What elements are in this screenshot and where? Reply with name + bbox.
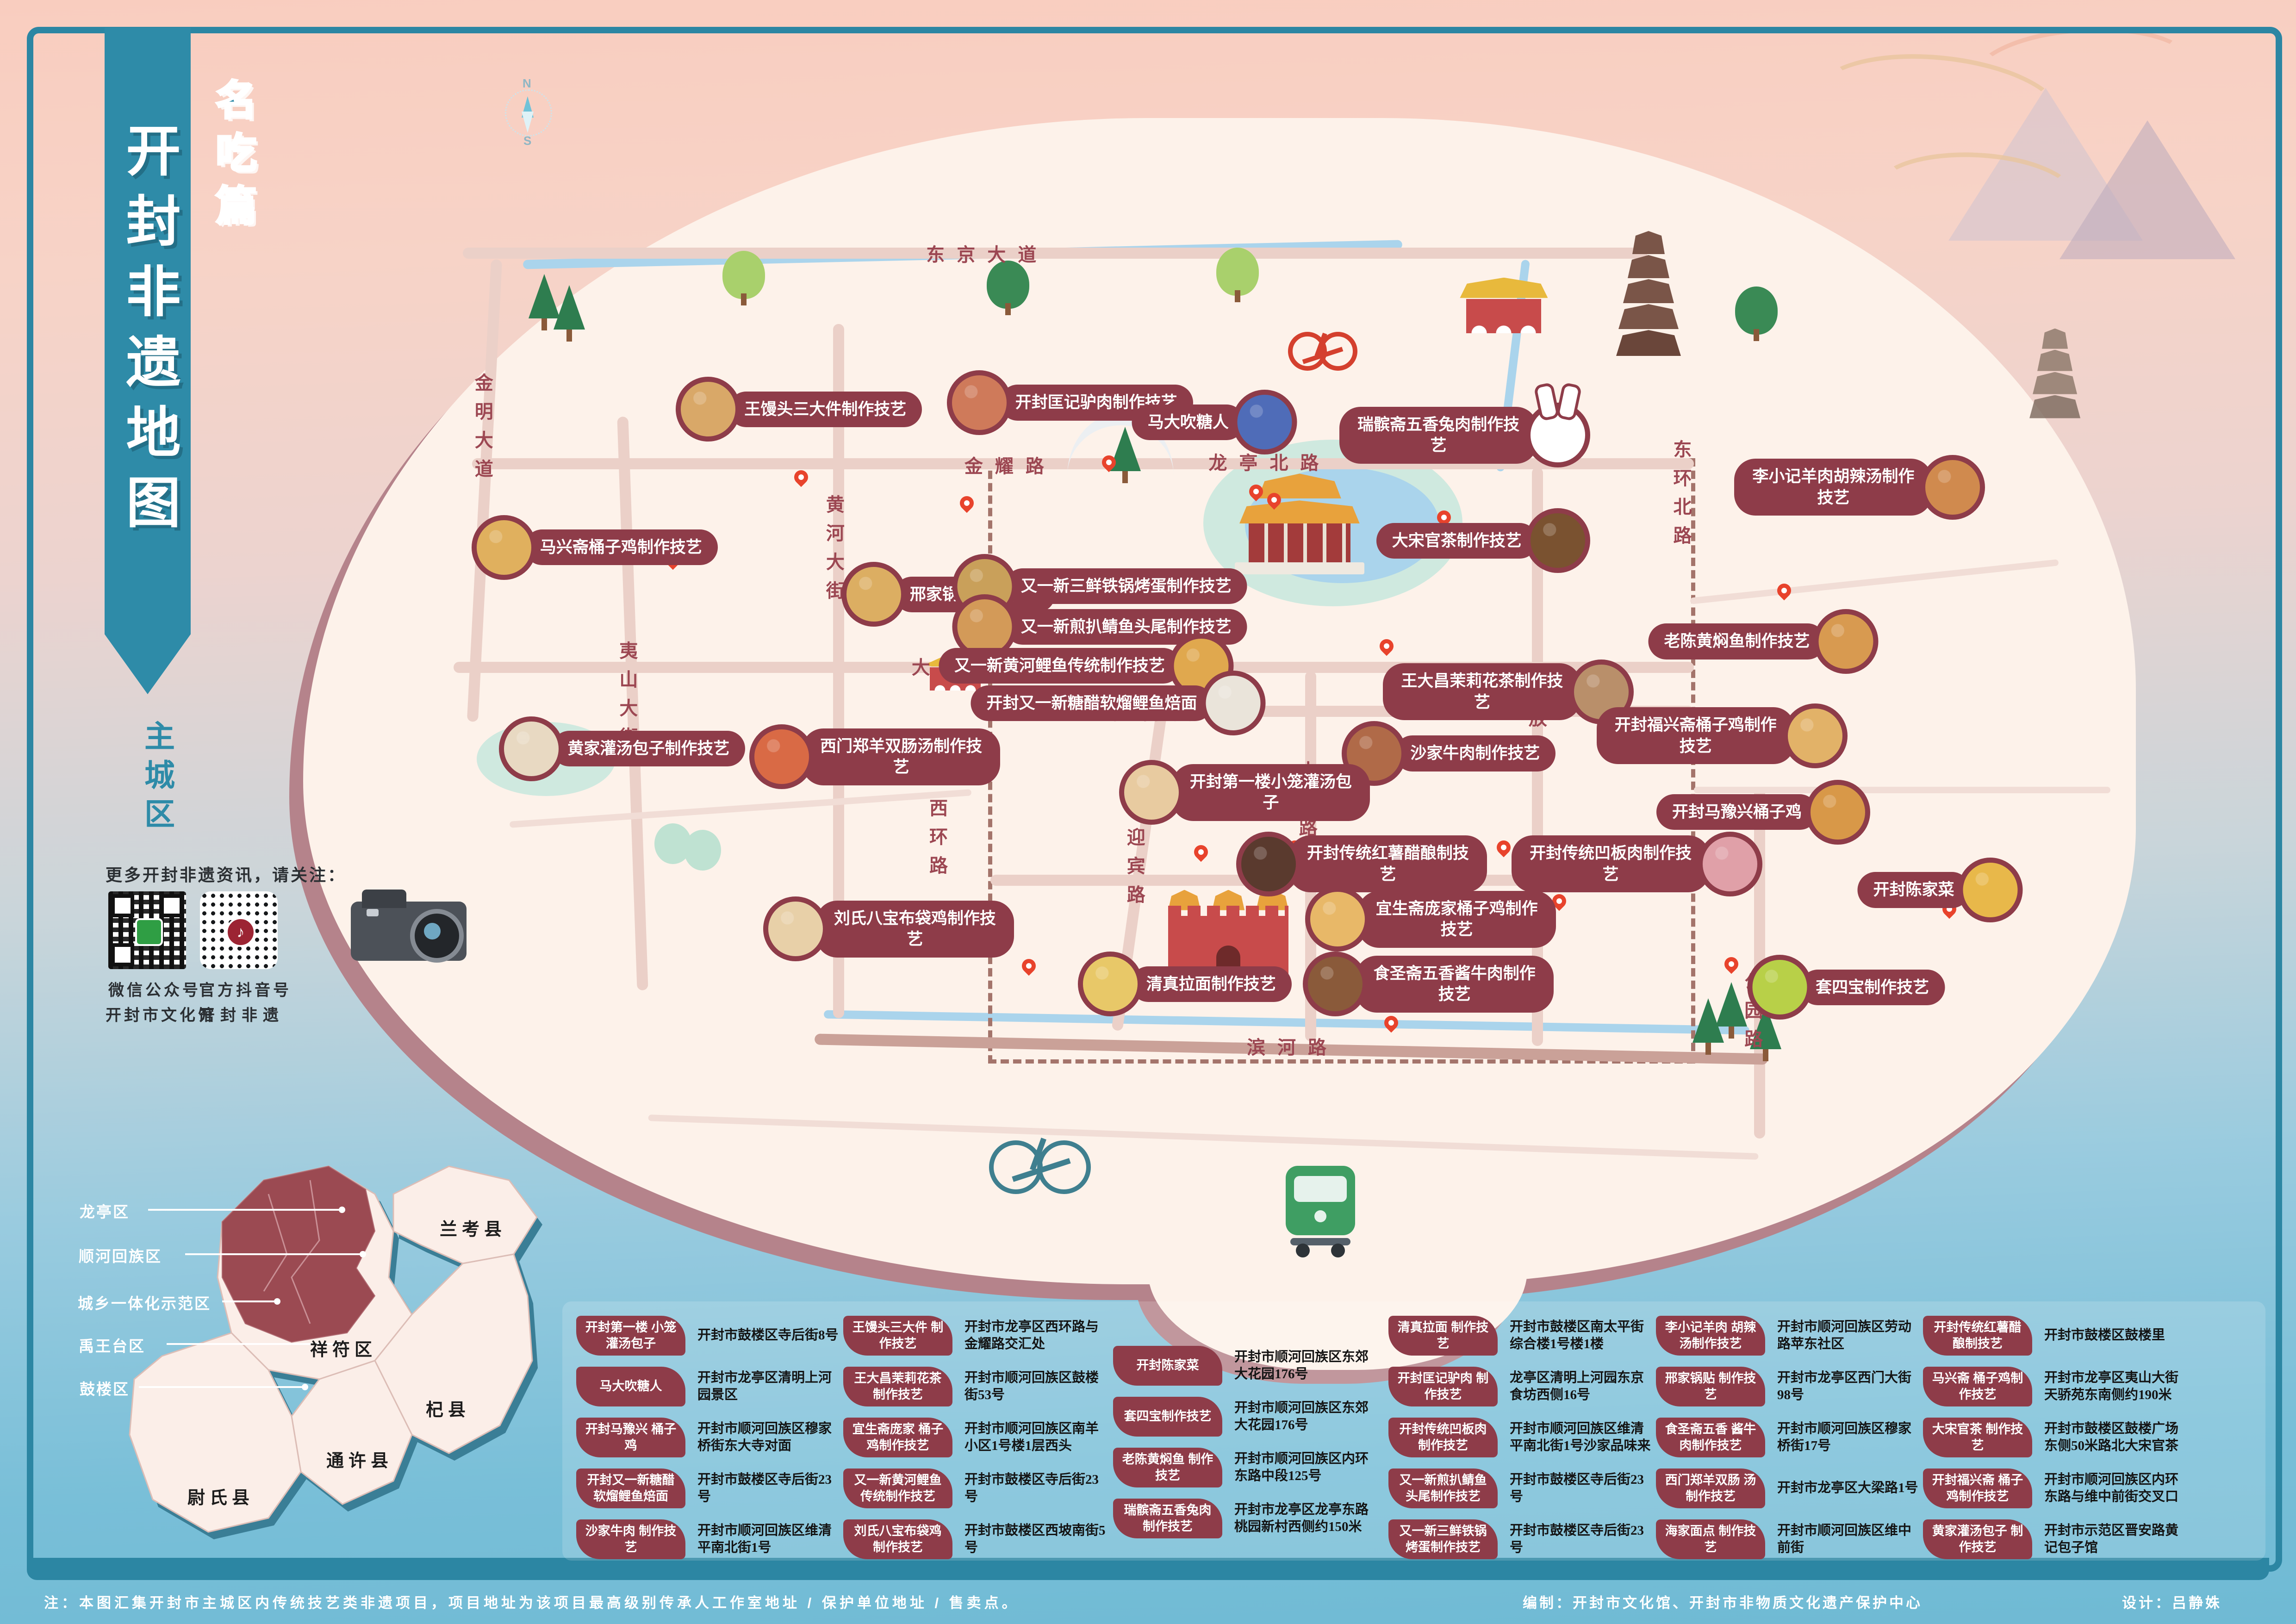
legend-item-name: 开封传统红薯醋 酿制技艺 [1923, 1316, 2032, 1356]
legend-item-address: 开封市顺河回族区维清平南北街1号沙家品味来 [1510, 1420, 1657, 1455]
legend-item-name: 李小记羊肉 胡辣汤制作技艺 [1656, 1316, 1765, 1356]
food-photo-circle [1078, 952, 1143, 1016]
map-poi[interactable]: 食圣斋五香酱牛肉制作技艺 [1303, 952, 1554, 1016]
inset-label-longting: 龙亭区 [80, 1200, 130, 1222]
footer-credit-left: 编制：开封市文化馆、开封市非物质文化遗产保护中心 [1523, 1591, 1923, 1612]
food-photo-circle [1305, 887, 1370, 952]
road-name: 金耀路 [964, 456, 1056, 477]
legend-item[interactable]: 又一新黄河鲤鱼 传统制作技艺 开封市鼓楼区寺后街23号 [843, 1467, 1112, 1510]
poi-label: 食圣斋五香酱牛肉制作技艺 [1356, 956, 1554, 1013]
legend-item-address: 开封市龙亭区龙亭东路桃园新村西侧约150米 [1234, 1501, 1381, 1536]
food-photo-circle [1783, 703, 1848, 768]
road-label: 滨河路 [1247, 1033, 1338, 1059]
legend-item[interactable]: 开封又一新糖醋 软熘鲤鱼焙面 开封市鼓楼区寺后街23号 [576, 1467, 845, 1510]
poi-label: 马大吹糖人 [1132, 404, 1244, 441]
poi-label: 李小记羊肉胡辣汤制作技艺 [1734, 459, 1932, 516]
legend-item[interactable]: 马大吹糖人 开封市龙亭区清明上河园景区 [576, 1365, 845, 1408]
legend-group-1: 开封第一楼 小笼灌汤包子 开封市鼓楼区寺后街8号 马大吹糖人 开封市龙亭区清明上… [576, 1314, 845, 1569]
legend-item-address: 开封市顺河回族区鼓楼街53号 [964, 1369, 1112, 1404]
leader-line [139, 1386, 305, 1388]
legend-item-address: 开封市鼓楼区鼓楼广场东侧50米路北大宋官茶 [2044, 1420, 2191, 1455]
legend-item-address: 开封市顺河回族区南羊小区1号楼1层西头 [964, 1420, 1112, 1455]
edition-label: 名吃篇 [204, 79, 262, 237]
legend-item-name: 邢家锅贴 制作技艺 [1656, 1367, 1765, 1406]
legend-item-address: 开封市顺河回族区劳动路苹东社区 [1777, 1319, 1924, 1353]
footer-note: 注：本图汇集开封市主城区内传统技艺类非遗项目，项目地址为该项目最高级别传承人工作… [44, 1591, 1020, 1612]
inset-label-yuwangtai: 禹王台区 [79, 1334, 145, 1356]
map-poi[interactable]: 沙家牛肉制作技艺 [1342, 721, 1556, 786]
district-inset-map: 龙亭区 顺河回族区 城乡一体化示范区 禹王台区 鼓楼区 兰考县 祥符区 杞县 通… [69, 1139, 560, 1555]
inset-label-tongxu: 通许县 [326, 1446, 393, 1472]
legend-group-6: 开封传统红薯醋 酿制技艺 开封市鼓楼区鼓楼里 马兴斋 桶子鸡制作技艺 开封市龙亭… [1923, 1314, 2191, 1569]
legend-item-address: 开封市鼓楼区寺后街23号 [1510, 1522, 1657, 1556]
food-photo-circle [1232, 390, 1297, 454]
legend-item-name: 开封又一新糖醋 软熘鲤鱼焙面 [576, 1468, 685, 1508]
iron-pagoda-icon [1616, 231, 1681, 370]
map-poi[interactable]: 王馒头三大件制作技艺 [676, 377, 922, 442]
follow-heading: 更多开封非遗资讯，请关注： [106, 862, 346, 886]
poi-label: 黄家灌汤包子制作技艺 [552, 731, 745, 767]
food-photo-circle [749, 724, 814, 789]
road-label: 东环北路 [1667, 440, 1694, 554]
legend-item[interactable]: 开封福兴斋 桶子鸡制作技艺 开封市顺河回族区内环东路与维中前街交叉口 [1923, 1467, 2191, 1510]
poi-label: 大宋官茶制作技艺 [1376, 523, 1537, 559]
legend-item-name: 瑞髌斋五香兔肉 制作技艺 [1113, 1499, 1222, 1538]
legend-item-name: 清真拉面 制作技艺 [1388, 1316, 1498, 1356]
compass-s: S [523, 134, 531, 148]
map-poi[interactable]: 黄家灌汤包子制作技艺 [499, 716, 745, 781]
map-poi[interactable]: 清真拉面制作技艺 [1078, 952, 1292, 1016]
legend-group-4: 清真拉面 制作技艺 开封市鼓楼区南太平街综合楼1号楼1楼 开封匡记驴肉 制作技艺… [1388, 1314, 1657, 1569]
legend-item-address: 开封市顺河回族区穆家桥街东大寺对面 [697, 1420, 845, 1455]
poi-label: 开封陈家菜 [1858, 872, 1970, 908]
legend-item[interactable]: 瑞髌斋五香兔肉 制作技艺 开封市龙亭区龙亭东路桃园新村西侧约150米 [1113, 1497, 1381, 1540]
legend-item[interactable]: 又一新煎扒鲭鱼 头尾制作技艺 开封市鼓楼区寺后街23号 [1388, 1467, 1657, 1510]
food-photo-circle [1201, 671, 1266, 735]
legend-item-name: 宜生斋庞家 桶子鸡制作技艺 [843, 1418, 952, 1457]
map-poi[interactable]: 刘氏八宝布袋鸡制作技艺 [763, 896, 1014, 961]
map-poi[interactable]: 开封陈家菜 [1858, 858, 2023, 922]
food-photo-circle [1920, 455, 1985, 520]
map-poi[interactable]: 瑞髌斋五香兔肉制作技艺 [1339, 403, 1590, 467]
legend-item[interactable]: 王大昌茉莉花茶 制作技艺 开封市顺河回族区鼓楼街53号 [843, 1365, 1112, 1408]
legend-item-address: 开封市示范区晋安路黄记包子馆 [2044, 1522, 2191, 1556]
inset-label-gulou: 鼓楼区 [80, 1377, 130, 1399]
legend-item-name: 又一新黄河鲤鱼 传统制作技艺 [843, 1468, 952, 1508]
legend-item[interactable]: 刘氏八宝布袋鸡 制作技艺 开封市鼓楼区西坡南街5号 [843, 1518, 1112, 1561]
leader-line [185, 1253, 363, 1255]
legend-item[interactable]: 开封马豫兴 桶子鸡 开封市顺河回族区穆家桥街东大寺对面 [576, 1416, 845, 1459]
tree-icon [684, 830, 721, 871]
food-photo-circle [947, 370, 1012, 435]
inset-label-qixian: 杞县 [426, 1395, 470, 1421]
tree-icon [1692, 983, 1724, 1043]
legend-item-name: 王大昌茉莉花茶 制作技艺 [843, 1367, 952, 1406]
legend-item[interactable]: 黄家灌汤包子 制作技艺 开封市示范区晋安路黄记包子馆 [1923, 1518, 2191, 1561]
legend-item-address: 开封市鼓楼区鼓楼里 [2044, 1327, 2191, 1344]
legend-item[interactable]: 清真拉面 制作技艺 开封市鼓楼区南太平街综合楼1号楼1楼 [1388, 1314, 1657, 1357]
legend-item-address: 开封市顺河回族区内环东路中段125号 [1234, 1450, 1381, 1485]
legend-item[interactable]: 王馒头三大件 制作技艺 开封市龙亭区西环路与金耀路交汇处 [843, 1314, 1112, 1357]
poi-label: 开封福兴斋桶子鸡制作技艺 [1597, 707, 1795, 764]
food-photo-circle [1303, 952, 1368, 1016]
pagoda-icon [2029, 329, 2080, 435]
legend-item-address: 开封市龙亭区夷山大街天骄苑东南侧约190米 [2044, 1369, 2191, 1404]
poi-label: 王馒头三大件制作技艺 [728, 392, 922, 428]
food-photo-circle [1747, 955, 1812, 1020]
map-poi[interactable]: 李小记羊肉胡辣汤制作技艺 [1734, 455, 1985, 520]
qr1-type: 微信公众号 [108, 977, 201, 1000]
legend-item[interactable]: 开封匡记驴肉 制作技艺 龙亭区清明上河园东京食坊西侧16号 [1388, 1365, 1657, 1408]
tree-icon [722, 251, 765, 299]
legend-item-address: 开封市顺河回族区维中前街 [1777, 1522, 1924, 1556]
map-poi[interactable]: 西门郑羊双肠汤制作技艺 [749, 724, 1000, 789]
poi-label: 开封又一新糖醋软熘鲤鱼焙面 [971, 685, 1213, 722]
page-title: 开封非遗地图 [109, 56, 188, 611]
bicycle-icon [1288, 324, 1357, 371]
road-label: 西环路 [923, 798, 950, 884]
map-poi[interactable]: 开封第一楼小笼灌汤包子 [1119, 760, 1370, 825]
road-name: 东环北路 [1670, 440, 1691, 554]
legend-item-address: 开封市鼓楼区寺后街8号 [697, 1327, 845, 1344]
food-photo-circle [1814, 609, 1879, 674]
legend-item-name: 黄家灌汤包子 制作技艺 [1923, 1519, 2032, 1559]
legend-item-name: 大宋官茶 制作技艺 [1923, 1418, 2032, 1457]
legend-item[interactable]: 开封第一楼 小笼灌汤包子 开封市鼓楼区寺后街8号 [576, 1314, 845, 1357]
legend-item[interactable]: 食圣斋五香 酱牛肉制作技艺 开封市顺河回族区穆家桥街17号 [1656, 1416, 1924, 1459]
poi-label: 清真拉面制作技艺 [1131, 966, 1292, 1002]
food-photo-circle [499, 716, 564, 781]
road-label: 金耀路 [964, 451, 1056, 478]
legend-item-address: 开封市顺河回族区维清平南北街1号 [697, 1522, 845, 1556]
inset-label-weishi: 尉氏县 [187, 1483, 254, 1509]
road-label: 东京大道 [926, 240, 1048, 267]
inset-label-xiangfu: 祥符区 [310, 1335, 377, 1361]
legend-item-address: 开封市鼓楼区寺后街23号 [697, 1471, 845, 1506]
road-name: 金明大道 [472, 373, 492, 488]
footer-credit-right: 设计：吕静姝 [2122, 1591, 2222, 1612]
poi-label: 老陈黄焖鱼制作技艺 [1649, 623, 1826, 660]
bicycle-icon [989, 1125, 1091, 1194]
legend-item-address: 龙亭区清明上河园东京食坊西侧16号 [1510, 1369, 1657, 1404]
camera-icon [351, 885, 467, 964]
poi-label: 王大昌茉莉花茶制作技艺 [1383, 663, 1581, 720]
legend-item[interactable]: 李小记羊肉 胡辣汤制作技艺 开封市顺河回族区劳动路苹东社区 [1656, 1314, 1924, 1357]
memorial-arch-icon [1460, 278, 1548, 333]
road-name: 迎宾路 [1124, 828, 1145, 914]
tree-icon [1216, 248, 1259, 296]
legend-group-3: 开封陈家菜 开封市顺河回族区东郊大花园176号 套四宝制作技艺 开封市顺河回族区… [1113, 1344, 1381, 1548]
food-photo-circle [1805, 780, 1870, 845]
poi-label: 开封第一楼小笼灌汤包子 [1172, 764, 1370, 821]
map-poi[interactable]: 开封福兴斋桶子鸡制作技艺 [1597, 703, 1848, 768]
legend-item-name: 海家面点 制作技艺 [1656, 1519, 1765, 1559]
qr2-type: 官方抖音号 [199, 977, 292, 1000]
tree-icon [554, 269, 585, 330]
map-poi[interactable]: 老陈黄焖鱼制作技艺 [1649, 609, 1879, 674]
legend-group-2: 王馒头三大件 制作技艺 开封市龙亭区西环路与金耀路交汇处 王大昌茉莉花茶 制作技… [843, 1314, 1112, 1569]
legend-item-address: 开封市顺河回族区东郊大花园176号 [1234, 1400, 1381, 1434]
leader-line [222, 1300, 278, 1302]
tree-icon [1735, 286, 1778, 335]
map-poi[interactable]: 套四宝制作技艺 [1747, 955, 1945, 1020]
wechat-qr-code[interactable] [108, 891, 186, 969]
road-name: 滨河路 [1247, 1038, 1338, 1058]
food-photo-circle [1236, 832, 1301, 896]
road-label: 迎宾路 [1121, 828, 1148, 914]
train-icon [1286, 1166, 1355, 1254]
legend-item-name: 马兴斋 桶子鸡制作技艺 [1923, 1367, 2032, 1406]
legend-item[interactable]: 又一新三鲜铁锅 烤蛋制作技艺 开封市鼓楼区寺后街23号 [1388, 1518, 1657, 1561]
legend-item-address: 开封市龙亭区大梁路1号 [1777, 1480, 1924, 1497]
food-photo-circle [1698, 832, 1762, 896]
legend-group-5: 李小记羊肉 胡辣汤制作技艺 开封市顺河回族区劳动路苹东社区 邢家锅贴 制作技艺 … [1656, 1314, 1924, 1569]
legend-item-name: 沙家牛肉 制作技艺 [576, 1519, 685, 1559]
map-poi[interactable]: 开封又一新糖醋软熘鲤鱼焙面 [971, 671, 1265, 735]
poi-label: 刘氏八宝布袋鸡制作技艺 [816, 901, 1014, 958]
food-photo-circle [472, 515, 536, 580]
douyin-qr-code[interactable]: ♪ [200, 891, 278, 969]
legend-item-address: 开封市龙亭区西环路与金耀路交汇处 [964, 1319, 1112, 1353]
inset-label-shunhe: 顺河回族区 [79, 1244, 162, 1266]
legend-item[interactable]: 马兴斋 桶子鸡制作技艺 开封市龙亭区夷山大街天骄苑东南侧约190米 [1923, 1365, 2191, 1408]
legend-item-name: 开封第一楼 小笼灌汤包子 [576, 1316, 685, 1356]
road-label: 金明大道 [469, 373, 496, 488]
legend-item[interactable]: 开封传统红薯醋 酿制技艺 开封市鼓楼区鼓楼里 [1923, 1314, 2191, 1357]
legend-item-address: 开封市鼓楼区南太平街综合楼1号楼1楼 [1510, 1319, 1657, 1353]
map-poi[interactable]: 马大吹糖人 [1132, 390, 1297, 454]
legend-item[interactable]: 邢家锅贴 制作技艺 开封市龙亭区西门大街98号 [1656, 1365, 1924, 1408]
food-photo-circle [676, 377, 740, 442]
legend-item-name: 马大吹糖人 [576, 1367, 685, 1406]
legend-item-name: 食圣斋五香 酱牛肉制作技艺 [1656, 1418, 1765, 1457]
compass-icon: N S [502, 76, 553, 146]
poi-label: 马兴斋桶子鸡制作技艺 [524, 529, 718, 566]
legend-item-address: 开封市顺河回族区东郊大花园176号 [1234, 1349, 1381, 1383]
poi-label: 开封马豫兴桶子鸡 [1656, 794, 1817, 830]
legend-item-address: 开封市鼓楼区西坡南街5号 [964, 1522, 1112, 1556]
legend-item[interactable]: 宜生斋庞家 桶子鸡制作技艺 开封市顺河回族区南羊小区1号楼1层西头 [843, 1416, 1112, 1459]
leader-line [148, 1209, 342, 1211]
legend-item-address: 开封市顺河回族区穆家桥街17号 [1777, 1420, 1924, 1455]
legend-item[interactable]: 开封传统凹板肉 制作技艺 开封市顺河回族区维清平南北街1号沙家品味来 [1388, 1416, 1657, 1459]
food-photo-circle [1119, 760, 1184, 825]
legend-item[interactable]: 老陈黄焖鱼 制作技艺 开封市顺河回族区内环东路中段125号 [1113, 1446, 1381, 1489]
poi-label: 开封传统红薯醋酿制技艺 [1289, 835, 1487, 892]
legend-item-name: 西门郑羊双肠 汤制作技艺 [1656, 1468, 1765, 1508]
food-photo-circle [1525, 403, 1590, 467]
qr2-name: 开封非遗 [199, 1002, 284, 1025]
food-photo-circle [1525, 508, 1590, 573]
douyin-logo-icon: ♪ [226, 917, 255, 947]
compass-n: N [523, 76, 531, 91]
legend-item-name: 刘氏八宝布袋鸡 制作技艺 [843, 1519, 952, 1559]
legend-item-name: 王馒头三大件 制作技艺 [843, 1316, 952, 1356]
area-label: 主城区 [135, 720, 180, 837]
road-name: 东京大道 [926, 245, 1048, 265]
food-photo-circle [1958, 858, 2023, 922]
legend-item-address: 开封市龙亭区清明上河园景区 [697, 1369, 845, 1404]
tree-icon [987, 261, 1029, 309]
legend-item[interactable]: 沙家牛肉 制作技艺 开封市顺河回族区维清平南北街1号 [576, 1518, 845, 1561]
legend-item-name: 又一新三鲜铁锅 烤蛋制作技艺 [1388, 1519, 1498, 1559]
legend-item-address: 开封市龙亭区西门大街98号 [1777, 1369, 1924, 1404]
road-name: 黄河大街 [823, 495, 844, 610]
poi-label: 瑞髌斋五香兔肉制作技艺 [1339, 407, 1537, 464]
poi-label: 套四宝制作技艺 [1800, 970, 1945, 1006]
inset-label-lankao: 兰考县 [440, 1215, 506, 1240]
road-name: 龙亭北路 [1208, 453, 1331, 473]
food-photo-circle [763, 896, 828, 961]
poi-label: 开封传统凹板肉制作技艺 [1512, 835, 1710, 892]
legend-item[interactable]: 海家面点 制作技艺 开封市顺河回族区维中前街 [1656, 1518, 1924, 1561]
poi-label: 宜生斋庞家桶子鸡制作技艺 [1358, 891, 1556, 948]
legend-item-name: 开封福兴斋 桶子鸡制作技艺 [1923, 1468, 2032, 1508]
legend-item[interactable]: 西门郑羊双肠 汤制作技艺 开封市龙亭区大梁路1号 [1656, 1467, 1924, 1510]
legend-item-name: 开封传统凹板肉 制作技艺 [1388, 1418, 1498, 1457]
map-poi[interactable]: 宜生斋庞家桶子鸡制作技艺 [1305, 887, 1556, 952]
map-poi[interactable]: 大宋官茶制作技艺 [1376, 508, 1590, 573]
poi-label: 西门郑羊双肠汤制作技艺 [802, 728, 1000, 785]
poi-label: 沙家牛肉制作技艺 [1394, 735, 1556, 772]
legend-item-name: 老陈黄焖鱼 制作技艺 [1113, 1448, 1222, 1487]
map-poi[interactable]: 马兴斋桶子鸡制作技艺 [472, 515, 718, 580]
legend-item[interactable]: 开封陈家菜 开封市顺河回族区东郊大花园176号 [1113, 1344, 1381, 1387]
road-name: 西环路 [927, 798, 947, 884]
legend-item-name: 开封马豫兴 桶子鸡 [576, 1418, 685, 1457]
legend-item-address: 开封市鼓楼区寺后街23号 [1510, 1471, 1657, 1506]
inset-label-shifanqu: 城乡一体化示范区 [78, 1291, 211, 1313]
legend-item-address: 开封市顺河回族区内环东路与维中前街交叉口 [2044, 1471, 2191, 1506]
wechat-logo-icon [135, 918, 163, 946]
food-photo-circle [841, 562, 906, 627]
legend-item-name: 又一新煎扒鲭鱼 头尾制作技艺 [1388, 1468, 1498, 1508]
legend-item-name: 套四宝制作技艺 [1113, 1397, 1222, 1437]
legend-item-address: 开封市鼓楼区寺后街23号 [964, 1471, 1112, 1506]
legend-item-name: 开封陈家菜 [1113, 1346, 1222, 1386]
legend-item-name: 开封匡记驴肉 制作技艺 [1388, 1367, 1498, 1406]
legend-item[interactable]: 大宋官茶 制作技艺 开封市鼓楼区鼓楼广场东侧50米路北大宋官茶 [1923, 1416, 2191, 1459]
legend-item[interactable]: 套四宝制作技艺 开封市顺河回族区东郊大花园176号 [1113, 1395, 1381, 1438]
